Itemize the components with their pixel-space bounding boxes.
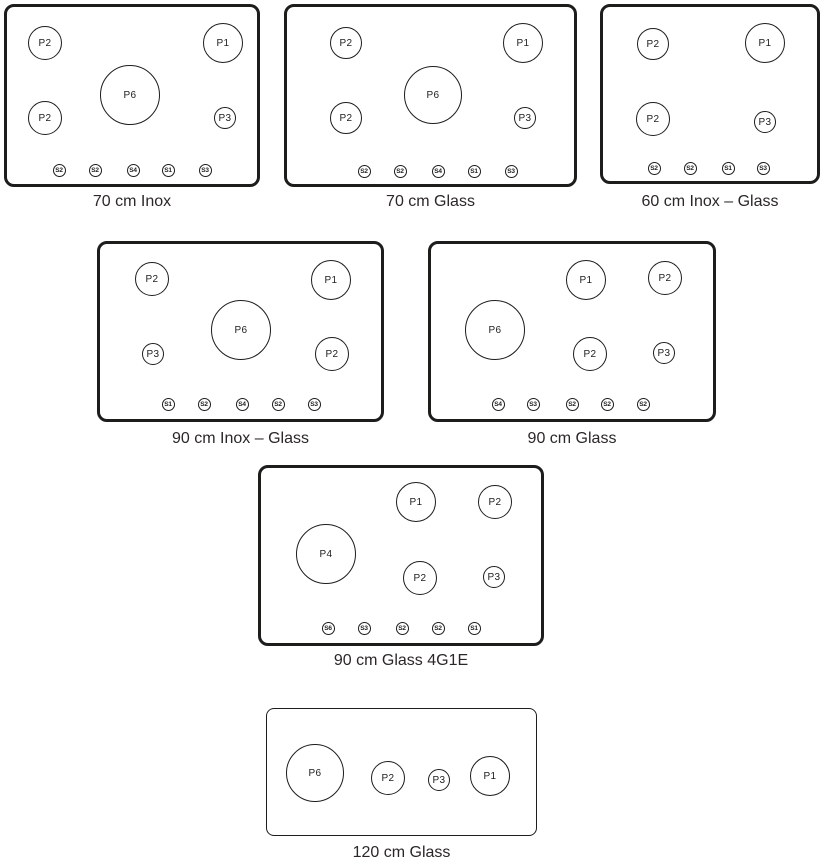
knob-s2-70-cm-glass: S2: [394, 165, 407, 178]
burner-p2-120-cm-glass: P2: [371, 761, 405, 795]
knob-s2-90-cm-glass: S2: [637, 398, 650, 411]
burner-p6-70-cm-glass: P6: [404, 66, 462, 124]
burner-p3-90-cm-glass-4g1e: P3: [483, 566, 505, 588]
burner-p2-60-cm-inox-glass: P2: [636, 102, 670, 136]
knob-s3-60-cm-inox-glass: S3: [757, 162, 770, 175]
burner-p3-90-cm-glass: P3: [653, 342, 675, 364]
knob-s1-70-cm-inox: S1: [162, 164, 175, 177]
burner-p1-60-cm-inox-glass: P1: [745, 23, 785, 63]
knob-s2-70-cm-glass: S2: [358, 165, 371, 178]
burner-p2-60-cm-inox-glass: P2: [637, 28, 669, 60]
knob-s3-90-cm-inox-glass: S3: [308, 398, 321, 411]
burner-p2-90-cm-glass: P2: [648, 261, 682, 295]
knob-s4-90-cm-glass: S4: [492, 398, 505, 411]
burner-p2-90-cm-glass-4g1e: P2: [403, 561, 437, 595]
knob-s6-90-cm-glass-4g1e: S6: [322, 622, 335, 635]
knob-s2-70-cm-inox: S2: [89, 164, 102, 177]
burner-p2-90-cm-glass: P2: [573, 337, 607, 371]
burner-p2-90-cm-glass-4g1e: P2: [478, 485, 512, 519]
panel-caption-120-cm-glass: 120 cm Glass: [353, 844, 451, 862]
burner-p2-90-cm-inox-glass: P2: [135, 262, 169, 296]
burner-p6-90-cm-inox-glass: P6: [211, 300, 271, 360]
burner-p6-70-cm-inox: P6: [100, 65, 160, 125]
burner-p3-90-cm-inox-glass: P3: [142, 343, 164, 365]
burner-p3-70-cm-inox: P3: [214, 107, 236, 129]
burner-p3-60-cm-inox-glass: P3: [754, 111, 776, 133]
knob-s2-90-cm-glass: S2: [566, 398, 579, 411]
burner-p2-70-cm-glass: P2: [330, 27, 362, 59]
burner-p3-120-cm-glass: P3: [428, 769, 450, 791]
knob-s3-90-cm-glass: S3: [527, 398, 540, 411]
burner-p2-90-cm-inox-glass: P2: [315, 337, 349, 371]
burner-p6-120-cm-glass: P6: [286, 744, 344, 802]
knob-s1-90-cm-inox-glass: S1: [162, 398, 175, 411]
knob-s1-90-cm-glass-4g1e: S1: [468, 622, 481, 635]
knob-s2-90-cm-inox-glass: S2: [272, 398, 285, 411]
burner-p2-70-cm-glass: P2: [330, 102, 362, 134]
knob-s2-90-cm-inox-glass: S2: [198, 398, 211, 411]
panel-caption-70-cm-inox: 70 cm Inox: [93, 193, 171, 211]
hob-outline-60-cm-inox-glass: [600, 4, 820, 184]
knob-s4-70-cm-glass: S4: [432, 165, 445, 178]
burner-p2-70-cm-inox: P2: [28, 101, 62, 135]
burner-p1-70-cm-inox: P1: [203, 23, 243, 63]
burner-p3-70-cm-glass: P3: [514, 107, 536, 129]
knob-s2-90-cm-glass: S2: [601, 398, 614, 411]
knob-s2-90-cm-glass-4g1e: S2: [396, 622, 409, 635]
knob-s2-60-cm-inox-glass: S2: [684, 162, 697, 175]
burner-p1-90-cm-glass: P1: [566, 260, 606, 300]
knob-s2-70-cm-inox: S2: [53, 164, 66, 177]
burner-p1-120-cm-glass: P1: [470, 756, 510, 796]
knob-s2-90-cm-glass-4g1e: S2: [432, 622, 445, 635]
burner-p2-70-cm-inox: P2: [28, 26, 62, 60]
burner-p1-70-cm-glass: P1: [503, 23, 543, 63]
knob-s4-90-cm-inox-glass: S4: [236, 398, 249, 411]
knob-s3-70-cm-inox: S3: [199, 164, 212, 177]
panel-caption-90-cm-glass: 90 cm Glass: [528, 430, 617, 448]
hob-layout-diagram: P2P1P6P2P3S2S2S4S1S370 cm InoxP2P1P6P2P3…: [0, 0, 825, 866]
knob-s4-70-cm-inox: S4: [127, 164, 140, 177]
panel-caption-60-cm-inox-glass: 60 cm Inox – Glass: [642, 193, 779, 211]
knob-s3-90-cm-glass-4g1e: S3: [358, 622, 371, 635]
burner-p6-90-cm-glass: P6: [465, 300, 525, 360]
burner-p4-90-cm-glass-4g1e: P4: [296, 524, 356, 584]
panel-caption-90-cm-glass-4g1e: 90 cm Glass 4G1E: [334, 652, 468, 670]
panel-caption-90-cm-inox-glass: 90 cm Inox – Glass: [172, 430, 309, 448]
knob-s1-60-cm-inox-glass: S1: [722, 162, 735, 175]
burner-p1-90-cm-glass-4g1e: P1: [396, 482, 436, 522]
panel-caption-70-cm-glass: 70 cm Glass: [386, 193, 475, 211]
burner-p1-90-cm-inox-glass: P1: [311, 260, 351, 300]
knob-s2-60-cm-inox-glass: S2: [648, 162, 661, 175]
knob-s1-70-cm-glass: S1: [468, 165, 481, 178]
knob-s3-70-cm-glass: S3: [505, 165, 518, 178]
